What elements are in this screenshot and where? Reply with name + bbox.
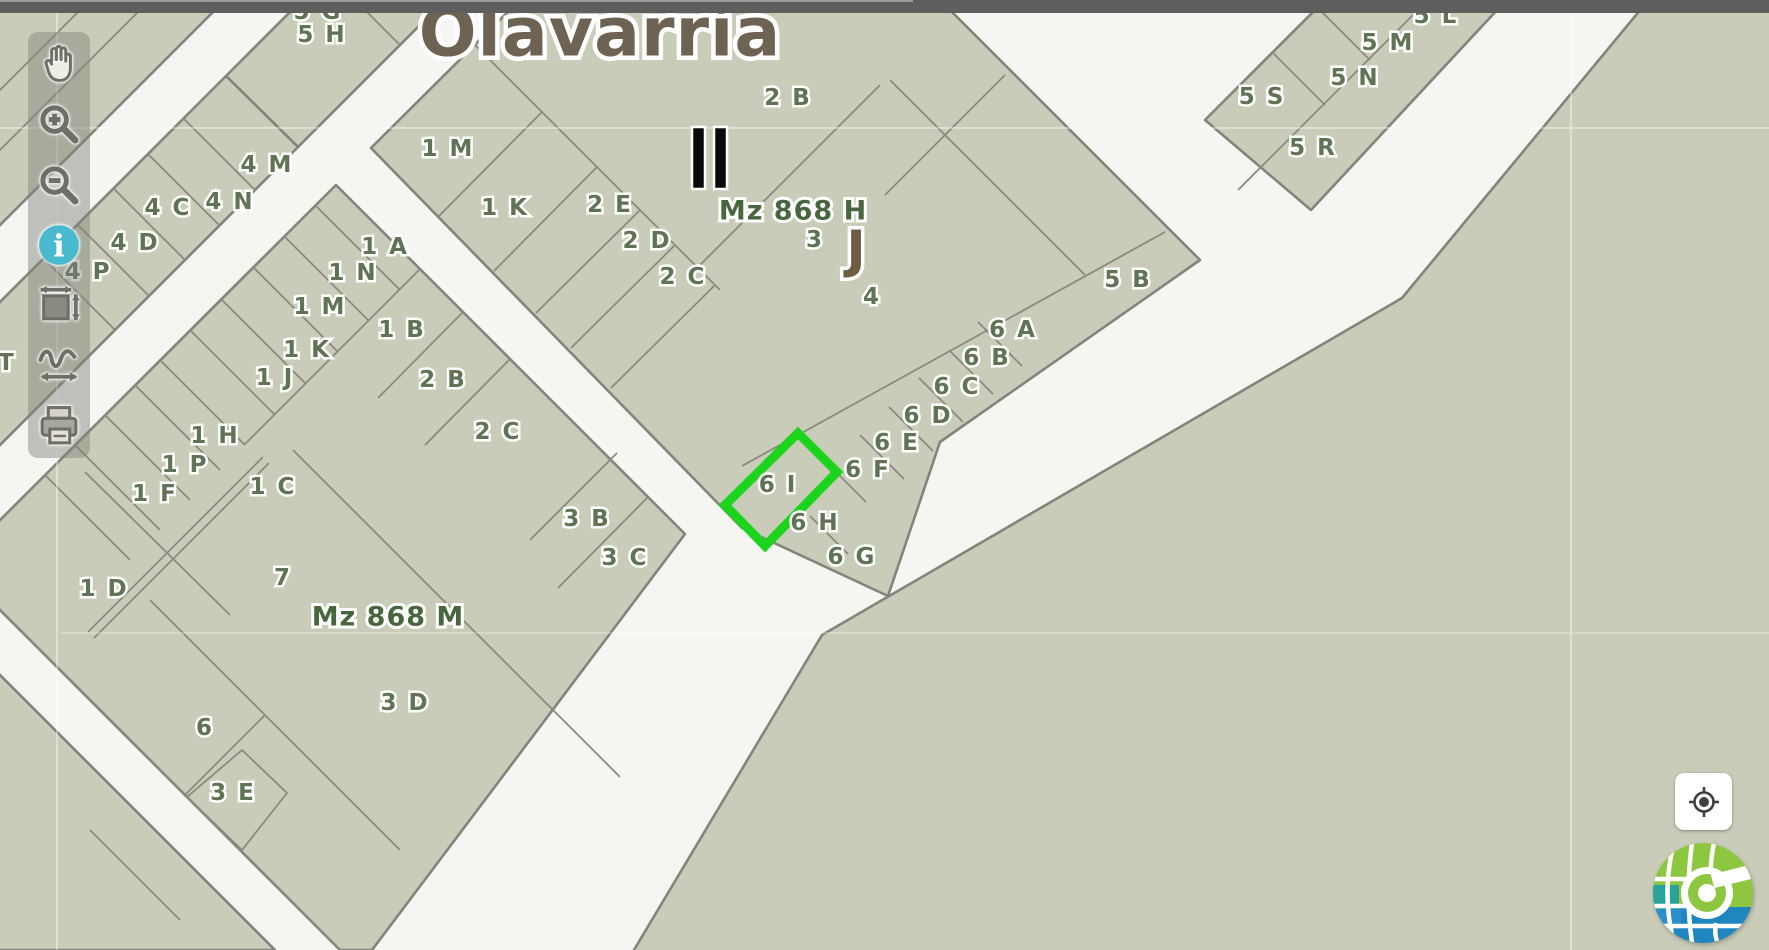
parcel-label: 5 H	[297, 22, 346, 48]
parcel-label: 6 D	[903, 403, 952, 429]
parcel-label-clipped: T	[0, 350, 16, 376]
geo-portal-logo	[1651, 841, 1755, 945]
parcel-label: 4	[863, 284, 881, 310]
monument-bars-symbol	[692, 127, 705, 189]
pan-tool-button[interactable]	[33, 38, 85, 90]
parcel-label: 6 I	[759, 472, 798, 498]
parcel-label: 1 M	[294, 294, 347, 320]
parcel-label: 1 J	[256, 365, 295, 391]
parcel-label: 1 N	[328, 260, 377, 286]
parcel-label: 6 A	[989, 317, 1037, 343]
parcel-label: 1 F	[132, 481, 178, 507]
parcel-label: 4 D	[110, 230, 159, 256]
svg-text:i: i	[53, 229, 65, 265]
parcel-label: 1 D	[79, 576, 128, 602]
map-canvas[interactable]: 5 H4 M4 N4 C4 D4 P1 A1 N1 M1 B1 K1 J2 B2…	[0, 0, 1769, 950]
parcel-label: 1 K	[481, 195, 529, 221]
district-label: Mz 868 H	[719, 196, 867, 227]
parcel-label: 3 C	[602, 545, 649, 571]
measure-tool-button[interactable]	[33, 340, 85, 392]
zoom-extent-button[interactable]	[33, 279, 85, 331]
parcel-label: 5 B	[1104, 267, 1152, 293]
parcel-label: 1 A	[361, 234, 409, 260]
map-viewer-window: 5 H4 M4 N4 C4 D4 P1 A1 N1 M1 B1 K1 J2 B2…	[0, 0, 1769, 950]
zoom-in-button[interactable]	[33, 98, 85, 150]
parcel-label: 1 M	[422, 136, 475, 162]
parcel-label: 5 R	[1289, 135, 1337, 161]
window-top-bar	[0, 0, 1769, 13]
parcel-label: 3	[806, 227, 824, 253]
measure-icon	[36, 343, 82, 389]
parcel-label: 2 B	[764, 85, 812, 111]
zoom-out-icon	[37, 162, 81, 208]
hand-icon	[37, 41, 81, 87]
zone-letter-label: J	[843, 220, 865, 280]
info-icon: i	[36, 222, 82, 268]
parcel-label: 6	[196, 715, 214, 741]
parcel-label: 2 D	[622, 228, 671, 254]
parcel-label: 5 N	[1330, 65, 1379, 91]
parcel-label: 6 E	[874, 430, 920, 456]
print-icon	[36, 403, 82, 449]
parcel-label: 7	[274, 565, 292, 591]
parcel-label: 1 H	[190, 423, 239, 449]
parcel-label: 1 K	[283, 337, 331, 363]
parcel-label: 2 E	[587, 192, 633, 218]
map-toolbar: i	[28, 32, 90, 458]
parcel-label: 4 N	[205, 189, 254, 215]
parcel-label: 6 F	[845, 457, 891, 483]
parcel-label: 1 P	[162, 452, 209, 478]
parcel-label: 3 E	[210, 780, 256, 806]
parcel-label: 6 C	[934, 374, 981, 400]
locate-icon	[1685, 783, 1723, 821]
parcel-label: 6 G	[828, 544, 877, 570]
monument-bars-symbol	[714, 127, 727, 189]
parcel-label: 3 B	[563, 506, 611, 532]
district-label: Mz 868 M	[312, 602, 465, 633]
parcel-label: 2 C	[660, 264, 707, 290]
extent-icon	[36, 282, 82, 328]
zoom-out-button[interactable]	[33, 159, 85, 211]
globe-logo-icon	[1651, 843, 1755, 945]
parcel-label: 2 B	[419, 367, 467, 393]
top-bar-shine	[0, 0, 913, 2]
zoom-in-icon	[37, 101, 81, 147]
info-tool-button[interactable]: i	[33, 219, 85, 271]
parcel-label: 4 M	[241, 152, 294, 178]
parcel-label: 5 M	[1362, 30, 1415, 56]
parcel-label: 2 C	[475, 419, 522, 445]
parcel-label: 6 B	[963, 345, 1011, 371]
parcel-label: 1 B	[378, 317, 426, 343]
locate-me-button[interactable]	[1675, 773, 1732, 830]
parcel-label: 1 C	[250, 474, 297, 500]
parcel-label: 6 H	[790, 510, 839, 536]
parcel-label: 5 S	[1239, 84, 1286, 110]
print-button[interactable]	[33, 400, 85, 452]
parcel-label: 4 C	[145, 195, 192, 221]
parcel-label: 3 D	[380, 690, 429, 716]
